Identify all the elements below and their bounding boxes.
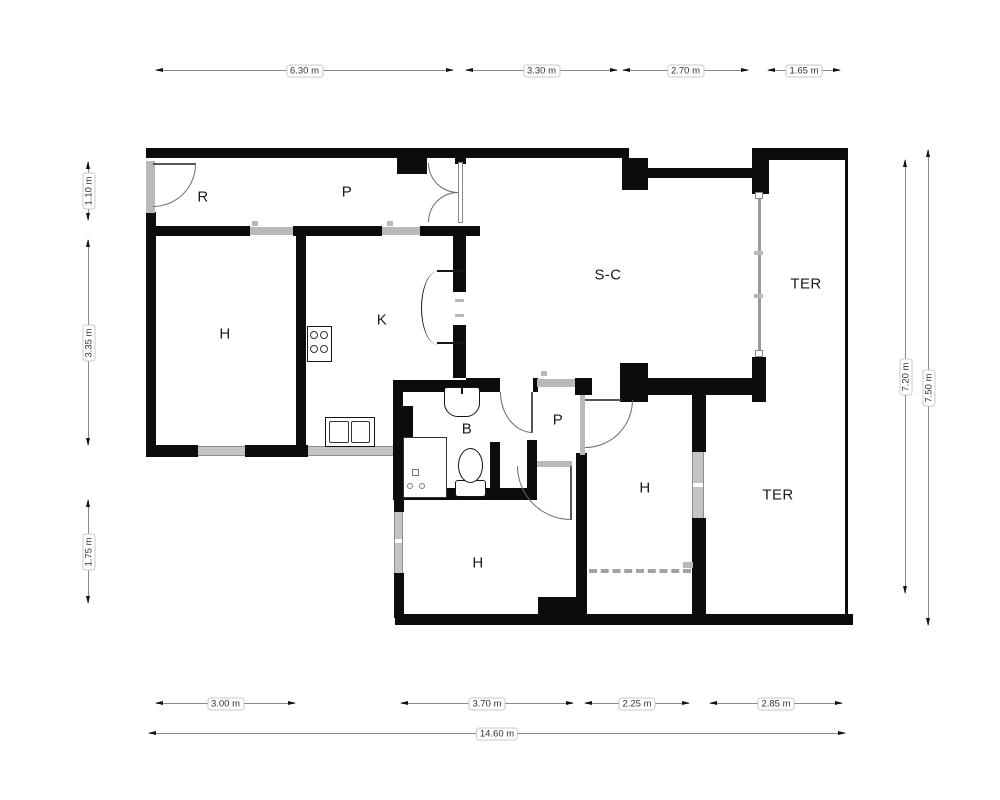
arrowhead-icon xyxy=(86,438,90,446)
dimension-label: 3.00 m xyxy=(207,698,244,711)
door-swing-arc xyxy=(153,164,196,207)
dimension-label: 2.85 m xyxy=(757,698,794,711)
door-sill xyxy=(250,227,293,235)
wall xyxy=(576,453,587,615)
arrowhead-icon xyxy=(86,161,90,169)
room-label-bedroom-h2: H xyxy=(639,480,650,497)
washbasin-tap xyxy=(461,388,463,394)
room-label-bedroom-h3: H xyxy=(472,555,483,572)
wall-terrace-parapet xyxy=(845,158,848,618)
arrowhead-icon xyxy=(682,701,690,705)
arrowhead-icon xyxy=(566,701,574,705)
dimension-top-3: 2.70 m xyxy=(623,70,748,71)
wall-pillar xyxy=(752,148,769,194)
glazing-tick xyxy=(754,251,763,255)
dimension-label: 7.20 m xyxy=(900,358,913,395)
dimension-label: 1.75 m xyxy=(83,533,96,570)
wall xyxy=(393,380,403,498)
arrowhead-icon xyxy=(155,701,163,705)
threshold xyxy=(537,379,575,387)
shower-fitting xyxy=(412,469,419,476)
room-label-bedroom-h1: H xyxy=(219,326,230,343)
curved-door-rail xyxy=(437,342,466,344)
wall xyxy=(648,378,765,395)
door-swing-arc xyxy=(517,466,571,520)
vent-tick xyxy=(387,221,393,226)
curved-door xyxy=(421,271,438,345)
wall xyxy=(394,498,404,512)
dimension-bottom-1: 3.00 m xyxy=(156,703,295,704)
dimension-bottom-2: 3.70 m xyxy=(401,703,573,704)
dimension-label: 3.30 m xyxy=(523,65,560,78)
arrowhead-icon xyxy=(148,731,156,735)
window xyxy=(198,446,245,456)
window-mullion xyxy=(395,539,402,543)
wall xyxy=(245,445,308,457)
room-label-kitchen: K xyxy=(377,312,387,329)
dimension-top-4: 1.65 m xyxy=(768,70,840,71)
dimension-label: 3.35 m xyxy=(83,324,96,361)
arrowhead-icon xyxy=(86,499,90,507)
stove-burner xyxy=(310,345,318,353)
arrowhead-icon xyxy=(709,701,717,705)
arrowhead-icon xyxy=(767,68,775,72)
wall xyxy=(490,442,500,492)
dimension-left-3: 1.75 m xyxy=(88,500,89,603)
window-mullion xyxy=(693,483,703,487)
terrace-glazing xyxy=(758,197,761,354)
arrowhead-icon xyxy=(610,68,618,72)
wall xyxy=(420,226,480,236)
wall xyxy=(769,148,848,160)
floor-plan-canvas: R P H K S-C TER B P H H TER 6.30 m 3.30 … xyxy=(0,0,1000,800)
dimension-label: 1.65 m xyxy=(785,65,822,78)
room-label-corridor-p: P xyxy=(342,184,352,201)
arrowhead-icon xyxy=(926,618,930,626)
arrowhead-icon xyxy=(903,159,907,167)
dimension-right-2: 7.50 m xyxy=(928,150,929,625)
room-label-hall-r: R xyxy=(197,189,208,206)
sink-basin xyxy=(351,421,370,443)
arrowhead-icon xyxy=(741,68,749,72)
wall xyxy=(453,325,466,378)
arrowhead-icon xyxy=(155,68,163,72)
glazing-dash xyxy=(455,314,464,317)
arrowhead-icon xyxy=(400,701,408,705)
arrowhead-icon xyxy=(86,596,90,604)
wall-pillar xyxy=(752,357,766,402)
dimension-bottom-total: 14.60 m xyxy=(149,733,845,734)
arrowhead-icon xyxy=(465,68,473,72)
dimension-label: 2.70 m xyxy=(667,65,704,78)
wall xyxy=(453,236,466,292)
arrowhead-icon xyxy=(835,701,843,705)
wall xyxy=(146,148,629,158)
wall xyxy=(692,518,706,618)
arrowhead-icon xyxy=(86,239,90,247)
room-label-living-sc: S-C xyxy=(594,267,621,284)
door-swing-arc xyxy=(585,400,633,448)
glazing-end xyxy=(755,192,763,199)
wall xyxy=(395,614,853,625)
glazing-end xyxy=(755,350,763,357)
shower-fitting xyxy=(419,483,425,489)
vent-tick xyxy=(252,221,258,226)
dimension-top-2: 3.30 m xyxy=(466,70,617,71)
toilet-bowl xyxy=(458,448,483,483)
arrowhead-icon xyxy=(288,701,296,705)
glazing-dash xyxy=(455,299,464,302)
shower-fitting xyxy=(407,483,413,489)
wall xyxy=(575,378,592,395)
double-door-jamb xyxy=(458,162,463,223)
dimension-label: 14.60 m xyxy=(476,728,518,741)
arrowhead-icon xyxy=(926,149,930,157)
vent-tick xyxy=(541,371,547,376)
glazing-tick xyxy=(754,294,763,298)
wall xyxy=(146,226,250,236)
wall xyxy=(394,573,404,618)
wall xyxy=(397,158,427,174)
door-swing-arc xyxy=(500,392,533,433)
room-label-hall-p2: P xyxy=(553,412,563,429)
wall xyxy=(146,445,198,457)
arrowhead-icon xyxy=(86,213,90,221)
wardrobe-dashed-line xyxy=(589,569,691,573)
wall xyxy=(646,168,754,178)
dimension-label: 7.50 m xyxy=(923,369,936,406)
stove-burner xyxy=(320,345,328,353)
dimension-label: 3.70 m xyxy=(468,698,505,711)
room-label-bathroom-b: B xyxy=(462,421,472,438)
double-door-swing-arc xyxy=(428,192,458,222)
dimension-right-1: 7.20 m xyxy=(905,160,906,593)
dimension-label: 6.30 m xyxy=(286,65,323,78)
dimension-bottom-4: 2.85 m xyxy=(710,703,842,704)
arrowhead-icon xyxy=(446,68,454,72)
wall xyxy=(692,391,706,452)
wall-chimney xyxy=(620,363,648,402)
arrowhead-icon xyxy=(903,586,907,594)
sink-basin xyxy=(329,421,349,443)
door-sill xyxy=(382,227,420,235)
wall xyxy=(296,236,306,445)
dimension-label: 2.25 m xyxy=(618,698,655,711)
arrowhead-icon xyxy=(838,731,846,735)
wall xyxy=(293,226,382,236)
curved-door-rail xyxy=(437,270,466,272)
double-door-swing-arc xyxy=(428,163,458,193)
dimension-left-2: 3.35 m xyxy=(88,240,89,445)
room-label-terrace-2: TER xyxy=(762,487,793,504)
arrowhead-icon xyxy=(584,701,592,705)
arrowhead-icon xyxy=(622,68,630,72)
vent-tick xyxy=(683,562,693,568)
window xyxy=(308,446,393,456)
dimension-bottom-3: 2.25 m xyxy=(585,703,689,704)
dimension-label: 1.10 m xyxy=(83,172,96,209)
dimension-left-1: 1.10 m xyxy=(88,162,89,220)
stove-burner xyxy=(310,331,318,339)
wall xyxy=(622,158,648,190)
room-label-terrace-1: TER xyxy=(790,276,821,293)
wall xyxy=(146,212,156,457)
arrowhead-icon xyxy=(833,68,841,72)
dimension-top-1: 6.30 m xyxy=(156,70,453,71)
stove-burner xyxy=(320,331,328,339)
